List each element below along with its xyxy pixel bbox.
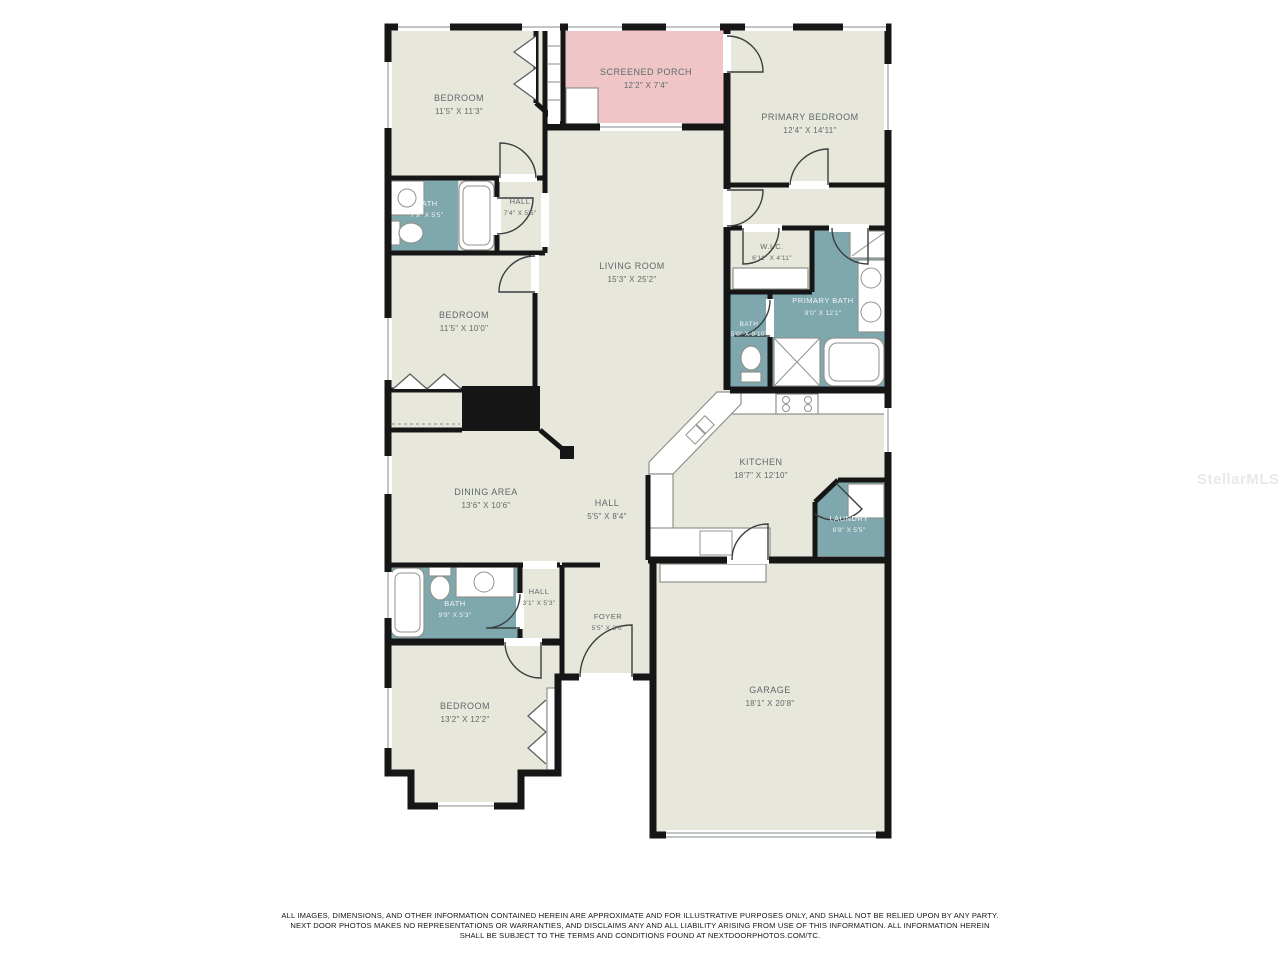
bath2-vanity: [456, 567, 514, 597]
label-foyer-name: FOYER: [594, 612, 622, 621]
garage-floor: [653, 560, 888, 835]
label-primary-bedroom-name: PRIMARY BEDROOM: [761, 112, 858, 122]
label-bath2-dims: 9'9" X 5'3": [439, 612, 472, 619]
small-bath-toilet-icon: [741, 346, 761, 370]
floor-plan-page: BEDROOM 11'5" X 11'3" SCREENED PORCH 12'…: [0, 0, 1280, 960]
label-bedroom3-dims: 13'2" X 12'2": [440, 715, 489, 724]
wall-post: [560, 446, 574, 459]
label-wic-name: W.I.C.: [760, 242, 783, 251]
label-primary-bath-name: PRIMARY BATH: [792, 296, 853, 305]
disclaimer-line: ALL IMAGES, DIMENSIONS, AND OTHER INFORM…: [0, 911, 1280, 921]
bath1-toilet-icon: [399, 223, 423, 243]
label-hall3-dims: 3'1" X 5'3": [523, 600, 556, 607]
label-hall1-dims: 7'4" X 5'5": [504, 210, 537, 217]
label-wic-dims: 6'11" X 4'11": [752, 255, 792, 262]
garage-step: [660, 564, 766, 582]
label-bedroom2-dims: 11'5" X 10'0": [440, 324, 489, 333]
label-bedroom2-name: BEDROOM: [439, 310, 489, 320]
label-small-bath-name: BATH: [740, 321, 759, 328]
stove: [776, 394, 818, 414]
label-hall2-name: HALL: [595, 498, 620, 508]
bath2-toilet-icon: [430, 576, 450, 600]
window: [384, 62, 392, 128]
label-kitchen-name: KITCHEN: [739, 457, 782, 467]
bay-window-floor: [411, 773, 521, 806]
bath2-toilet-tank: [429, 567, 451, 576]
disclaimer: ALL IMAGES, DIMENSIONS, AND OTHER INFORM…: [0, 911, 1280, 940]
disclaimer-line: SHALL BE SUBJECT TO THE TERMS AND CONDIT…: [0, 931, 1280, 941]
window: [884, 64, 892, 130]
window: [384, 456, 392, 494]
label-laundry-name: LAUNDRY: [829, 514, 868, 523]
bath2-tub: [391, 568, 424, 637]
label-primary-bedroom-dims: 12'4" X 14'11": [783, 126, 836, 135]
label-porch-dims: 12'2" X 7'4": [624, 81, 668, 90]
label-bath1-dims: 7'9" X 5'5": [411, 212, 444, 219]
label-dining-name: DINING AREA: [454, 487, 518, 497]
wall-mass: [462, 386, 540, 431]
label-bedroom1-dims: 11'5" X 11'3": [435, 107, 483, 116]
label-hall2-dims: 5'5" X 8'4": [587, 512, 627, 521]
mls-watermark: StellarMLS: [1197, 471, 1280, 488]
window: [384, 318, 392, 380]
label-garage-dims: 18'1" X 20'8": [745, 699, 794, 708]
window: [666, 23, 720, 31]
window: [384, 688, 392, 748]
bath1-tub: [459, 181, 494, 250]
label-primary-bath-dims: 9'0" X 12'1": [805, 310, 842, 317]
primary-tub: [824, 338, 884, 386]
label-bedroom1-name: BEDROOM: [434, 93, 484, 103]
opening: [541, 193, 549, 247]
window: [745, 23, 793, 31]
floor-plan: BEDROOM 11'5" X 11'3" SCREENED PORCH 12'…: [0, 0, 1280, 960]
label-bath1-name: BATH: [416, 199, 437, 208]
label-small-bath-dims: 5'0" X 9'10": [731, 331, 768, 338]
label-bath2-name: BATH: [444, 599, 465, 608]
kitchen-peninsula: [649, 528, 770, 558]
porch-screen-window: [600, 123, 682, 131]
bath1-vanity: [391, 181, 424, 215]
label-living-dims: 15'3" X 25'2": [607, 275, 656, 284]
small-bath-toilet-tank: [741, 372, 761, 382]
garage-door: [666, 830, 876, 840]
label-laundry-dims: 6'8" X 5'5": [833, 527, 866, 534]
label-porch-name: SCREENED PORCH: [600, 67, 692, 77]
porch-side-window-strip: [548, 30, 560, 124]
bay-window: [438, 802, 494, 810]
disclaimer-line: NEXT DOOR PHOTOS MAKES NO REPRESENTATION…: [0, 921, 1280, 931]
window: [384, 572, 392, 618]
label-living-name: LIVING ROOM: [599, 261, 665, 271]
window: [568, 23, 622, 31]
primary-bath-vanity: [858, 260, 886, 332]
label-garage-name: GARAGE: [749, 685, 791, 695]
wic-shelf: [733, 268, 808, 289]
window: [398, 23, 450, 31]
label-hall3-name: HALL: [529, 587, 550, 596]
window: [843, 23, 886, 31]
label-bedroom3-name: BEDROOM: [440, 701, 490, 711]
window: [884, 408, 892, 452]
opening: [523, 561, 557, 569]
label-dining-dims: 13'6" X 10'6": [461, 501, 510, 510]
label-kitchen-dims: 18'7" X 12'10": [734, 471, 788, 480]
label-foyer-dims: 5'5" X 8'0": [592, 625, 625, 632]
label-hall1-name: HALL: [510, 197, 531, 206]
porch-step: [566, 88, 598, 124]
window: [522, 23, 560, 31]
